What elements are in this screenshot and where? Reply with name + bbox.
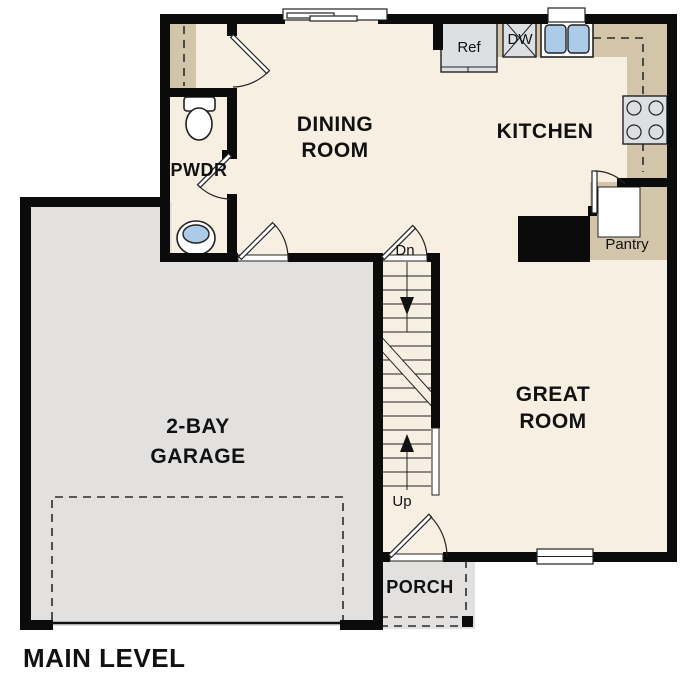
wall-pwdr-right-upper xyxy=(227,88,237,150)
dishwasher-label: DW xyxy=(508,31,534,48)
wall-stair-right xyxy=(431,253,440,428)
plan-title: MAIN LEVEL xyxy=(23,643,185,673)
wall-stair-top-stub xyxy=(427,253,440,262)
garage-floor xyxy=(26,202,380,626)
floor-plan-drawing: DINING ROOM KITCHEN GREAT ROOM 2-BAY GAR… xyxy=(0,0,687,687)
dining-window-pane-2 xyxy=(310,16,357,21)
wall-house-left xyxy=(160,14,170,262)
wall-garage-top xyxy=(20,197,170,207)
great-room-label-line1: GREAT xyxy=(516,383,590,406)
pantry-label: Pantry xyxy=(605,236,649,253)
wall-top-left xyxy=(160,14,285,24)
garage-label-line1: 2-BAY xyxy=(166,415,230,438)
wall-pwdr-bottom xyxy=(160,253,238,262)
kitchen-label: KITCHEN xyxy=(497,120,594,143)
wall-garage-dining xyxy=(288,253,378,262)
pantry-interior xyxy=(598,187,640,237)
great-room-label-line2: ROOM xyxy=(519,410,586,433)
pwdr-label: PWDR xyxy=(171,160,228,180)
wall-entry-bottom-left xyxy=(373,552,390,562)
sink-basin-left xyxy=(545,25,566,53)
garage-label-line2: GARAGE xyxy=(150,445,245,468)
sink-basin-right xyxy=(568,25,589,53)
wall-stair-left xyxy=(373,253,383,630)
wall-closet-stub xyxy=(227,24,237,36)
pantry-door-leaf xyxy=(592,171,597,213)
wall-pantry-top xyxy=(617,178,667,187)
wall-garage-left xyxy=(20,197,31,630)
porch-label: PORCH xyxy=(386,577,454,597)
wall-top-mid xyxy=(378,14,548,24)
refrigerator-label: Ref xyxy=(457,39,481,56)
wall-kitchen-stub xyxy=(433,17,443,50)
wall-pwdr-right-lower xyxy=(227,194,237,262)
stair-railing xyxy=(432,428,439,495)
dining-room-label-line2: ROOM xyxy=(301,139,368,162)
kitchen-window xyxy=(548,8,585,22)
porch-post xyxy=(462,616,473,627)
front-door-threshold xyxy=(390,554,443,561)
wall-bottom-right xyxy=(593,552,677,562)
kitchen-island xyxy=(518,216,590,262)
pwdr-sink-basin xyxy=(183,225,209,243)
stair-down-label: Dn xyxy=(395,242,414,259)
wall-garage-bottom-left xyxy=(20,620,53,630)
wall-right xyxy=(667,14,677,562)
toilet-bowl xyxy=(186,108,212,140)
wall-closet-bottom xyxy=(160,88,237,97)
entry-closet xyxy=(170,24,196,88)
stair-up-label: Up xyxy=(392,493,411,510)
floor-plan: DINING ROOM KITCHEN GREAT ROOM 2-BAY GAR… xyxy=(0,0,687,687)
dining-room-label-line1: DINING xyxy=(297,113,374,136)
wall-bottom-mid xyxy=(443,552,537,562)
wall-top-right xyxy=(585,14,677,24)
